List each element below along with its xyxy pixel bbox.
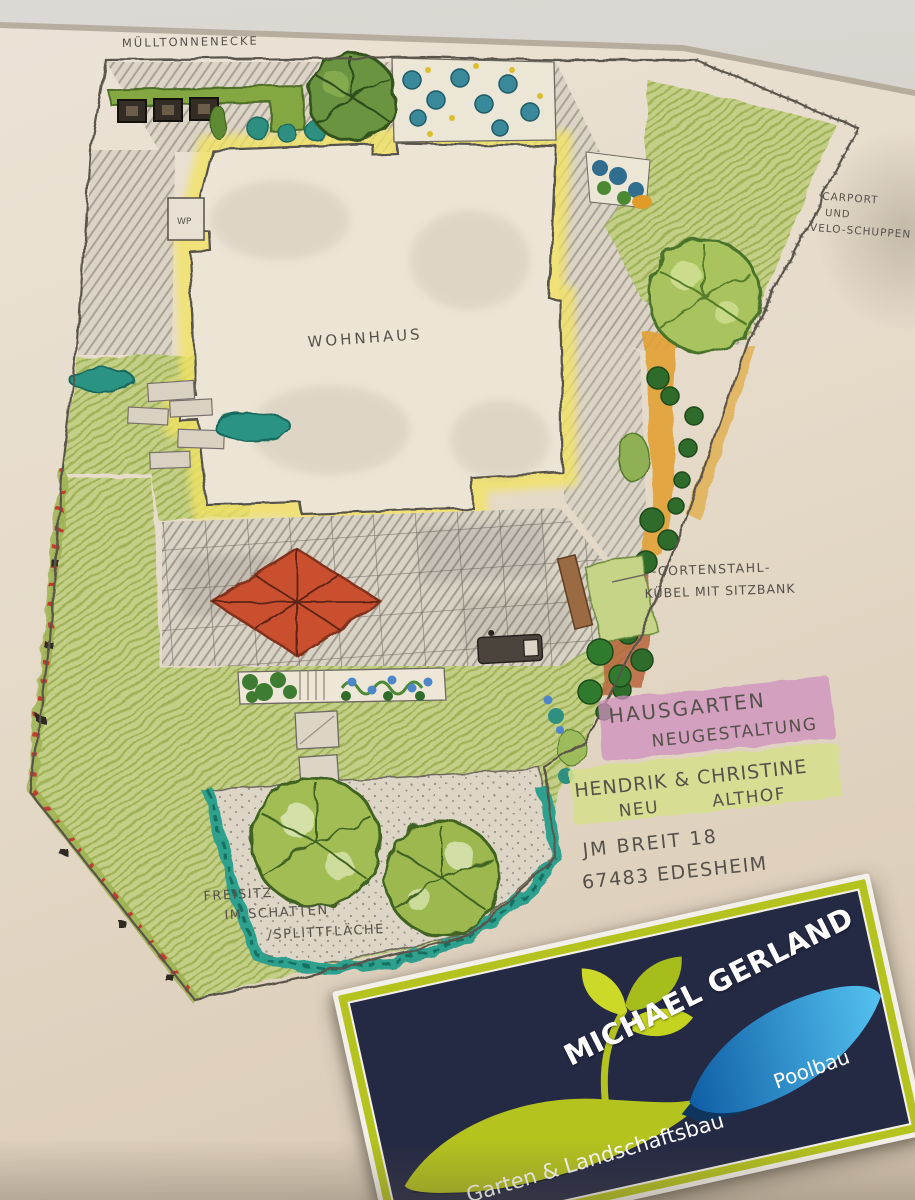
photo-shadow-bottom: [0, 1140, 915, 1200]
tree-top: [308, 53, 396, 141]
title-street: JM BREIT 18: [581, 826, 719, 862]
tree-right: [648, 240, 760, 352]
tree-bottom-right: [385, 821, 499, 935]
title-clients-2a: NEU: [618, 797, 660, 821]
photo-shadow-top-right: [780, 90, 915, 370]
muelltonnen-corner: [108, 86, 327, 142]
label-corten-2: KÜBEL MIT SITZBANK: [644, 580, 795, 601]
label-muelltonnenecke: MÜLLTONNENECKE: [122, 32, 259, 50]
photo-of-garden-plan: MÜLLTONNENECKE WOHNHAUS WP CARPORT UND V…: [0, 0, 915, 1200]
entrance-bed: [586, 152, 652, 209]
label-corten-1: -CORTENSTAHL-: [652, 560, 771, 579]
title-block: HAUSGARTEN NEUGESTALTUNG HENDRIK & CHRIS…: [561, 676, 849, 894]
label-wp: WP: [177, 217, 192, 227]
